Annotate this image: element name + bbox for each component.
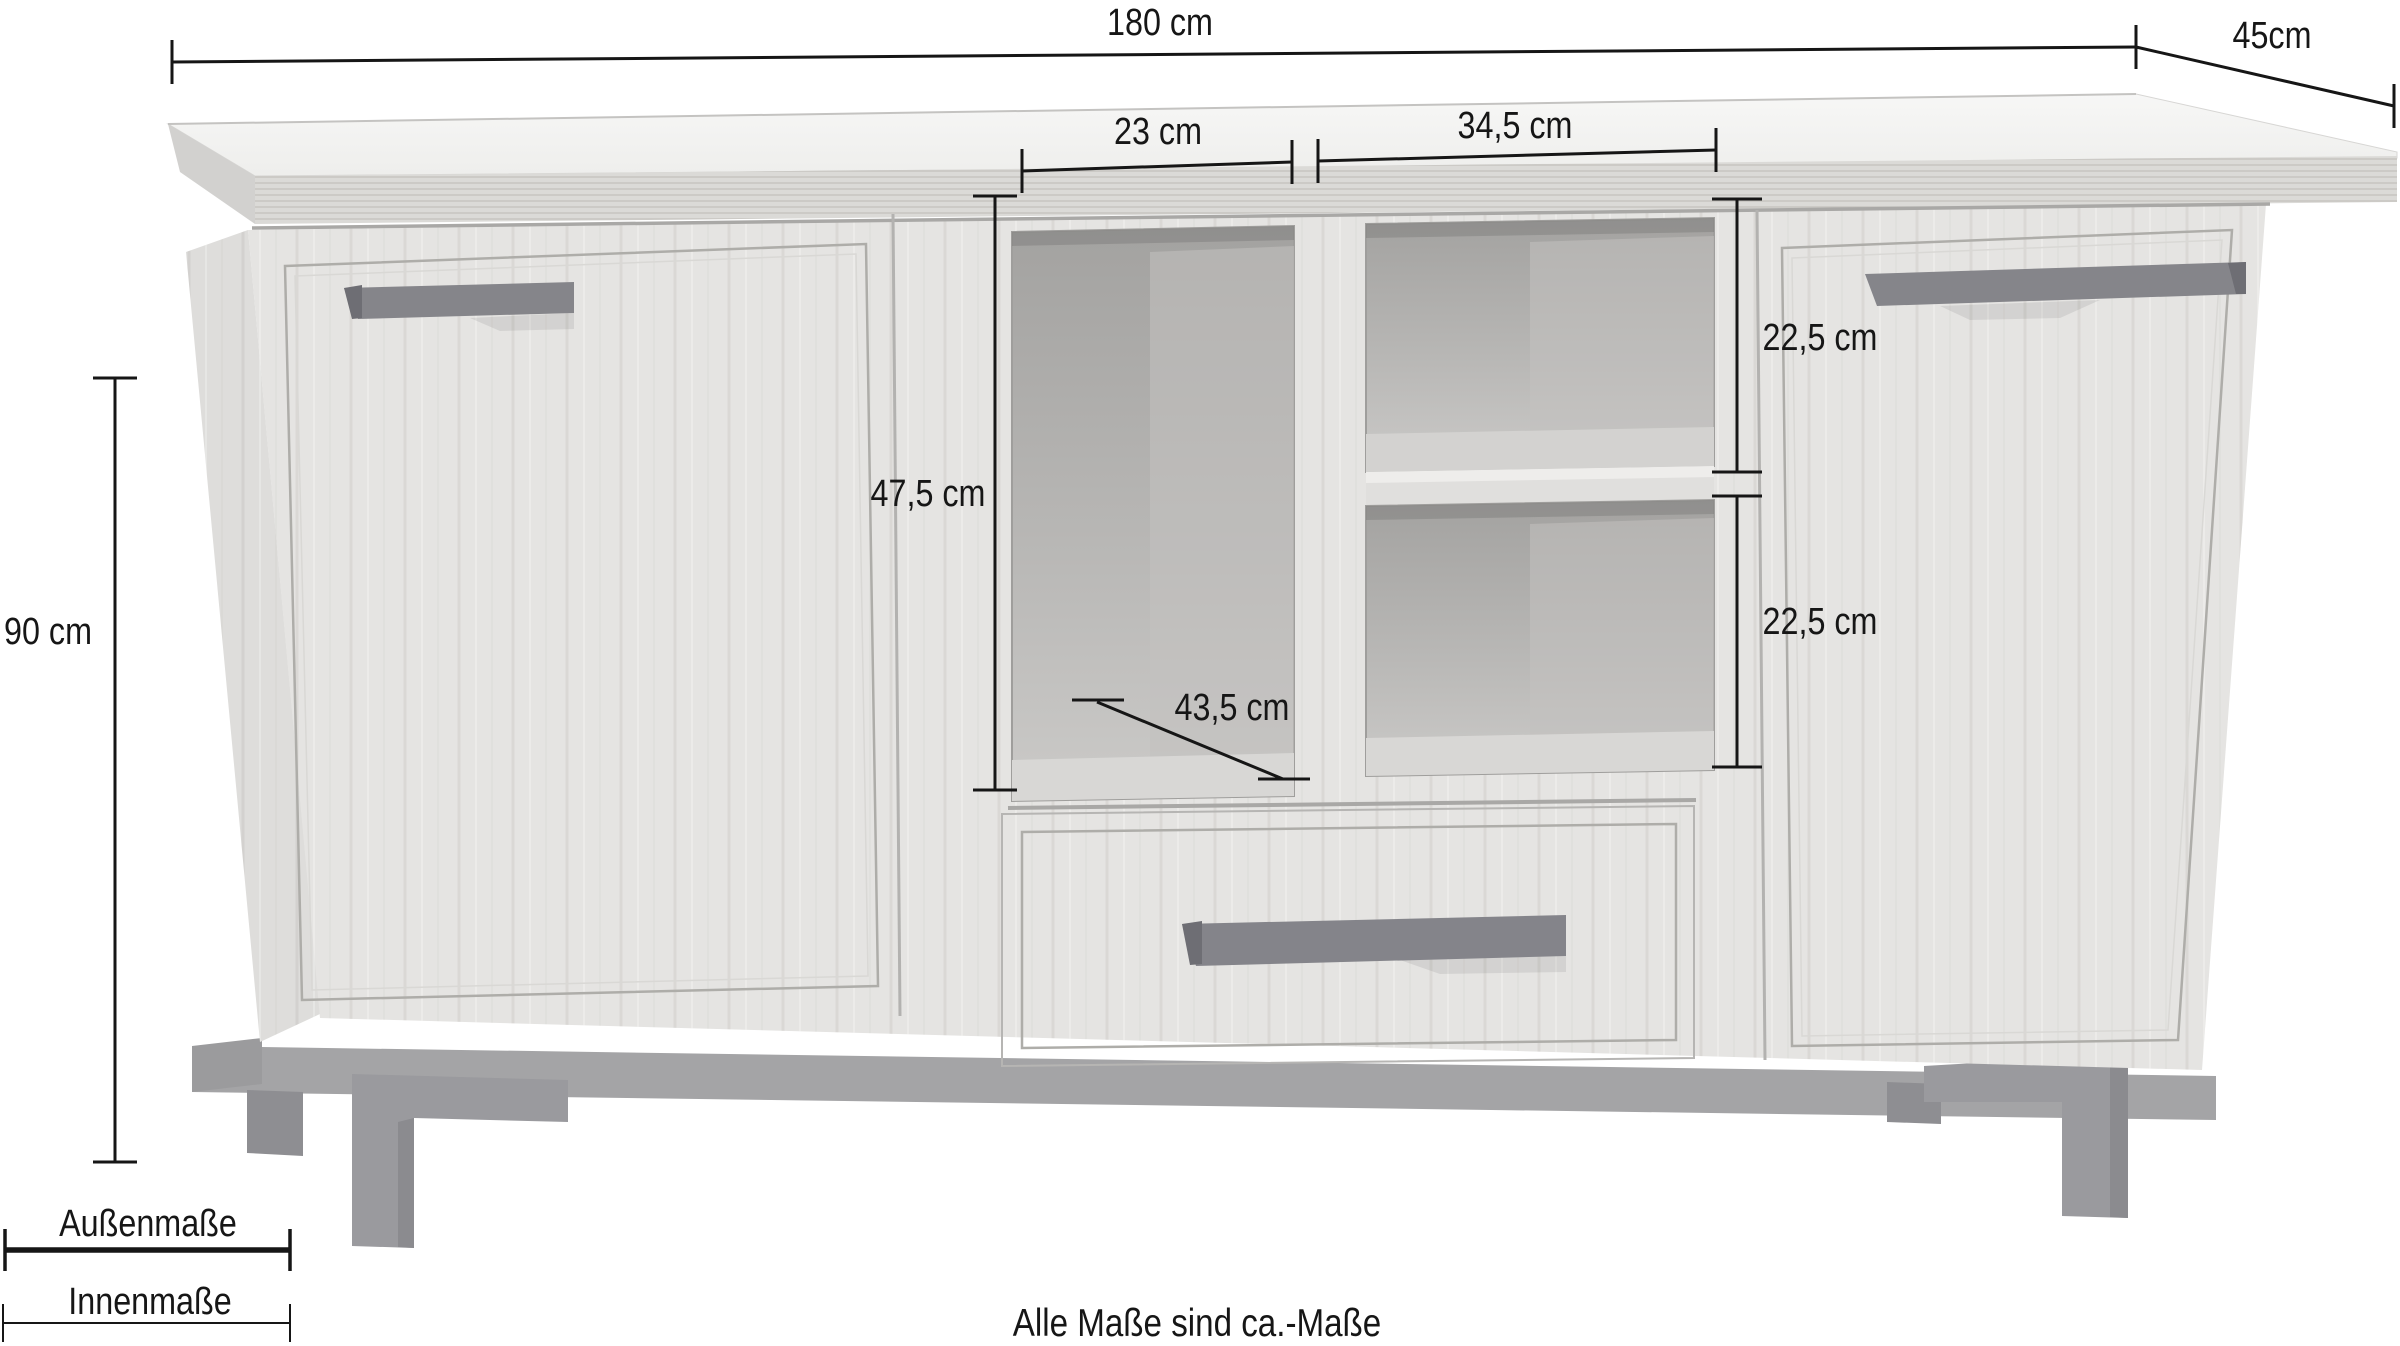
compartment-right-top-back <box>1530 236 1714 448</box>
dim-label-right-compartment-bottom-height: 22,5 cm <box>1763 600 1878 644</box>
compartment-left-floor <box>1012 753 1294 801</box>
dim-label-right-compartment-width: 34,5 cm <box>1458 104 1573 148</box>
dim-label-total-height: 90 cm <box>4 610 92 654</box>
dim-label-compartment-depth: 43,5 cm <box>1175 686 1290 730</box>
sideboard <box>168 94 2397 1248</box>
dim-label-right-compartment-top-height: 22,5 cm <box>1763 316 1878 360</box>
base-rail-left-cap <box>192 1038 262 1092</box>
front-right-leg <box>1924 1058 2128 1218</box>
compartment-right-top-floor <box>1366 427 1714 472</box>
dim-label-total-width: 180 cm <box>1107 1 1213 45</box>
furniture-dimension-diagram: 180 cm 45cm 90 cm 23 cm 34,5 cm 47,5 cm … <box>0 0 2400 1346</box>
front-right-leg-shade <box>2110 1060 2128 1218</box>
left-door-handle <box>344 282 574 319</box>
dim-label-depth: 45cm <box>2233 14 2312 58</box>
dim-label-left-compartment-width: 23 cm <box>1114 110 1202 154</box>
dim-total-width-line <box>172 47 2136 62</box>
diagram-canvas <box>0 0 2400 1346</box>
front-left-leg <box>352 1074 568 1248</box>
rear-left-foot <box>247 1090 303 1156</box>
legend-outer-label: Außenmaße <box>59 1202 237 1246</box>
legend-inner-label: Innenmaße <box>68 1280 231 1324</box>
compartment-right-bottom-back <box>1530 518 1714 752</box>
footer-note: Alle Maße sind ca.-Maße <box>1013 1302 1381 1346</box>
front-left-leg-shade <box>398 1118 414 1248</box>
compartment-right-bottom-floor <box>1366 731 1714 776</box>
dim-label-left-compartment-height: 47,5 cm <box>871 472 986 516</box>
